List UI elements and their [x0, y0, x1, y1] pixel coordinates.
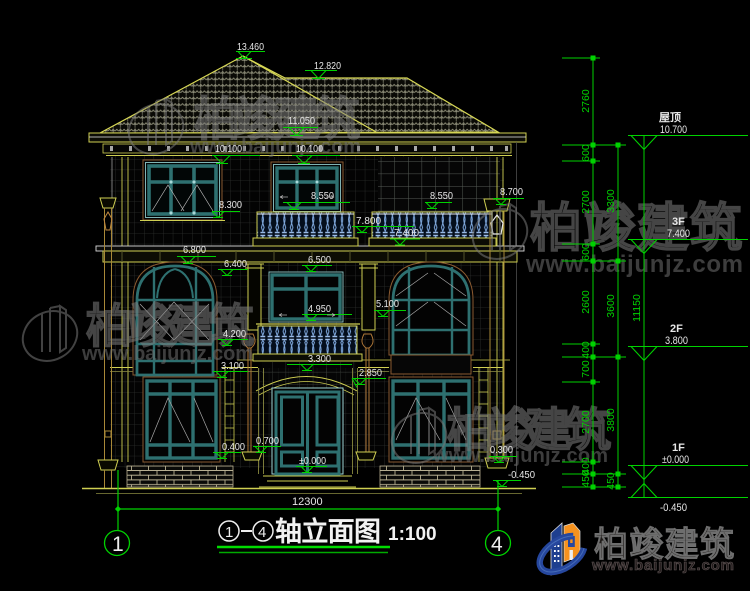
svg-text:2F: 2F: [670, 323, 683, 335]
svg-text:8.300: 8.300: [219, 200, 242, 211]
svg-text:1: 1: [225, 524, 233, 541]
svg-text:0.700: 0.700: [256, 436, 279, 447]
svg-text:6.800: 6.800: [183, 245, 206, 256]
svg-text:3.800: 3.800: [665, 335, 688, 347]
svg-text:0.400: 0.400: [222, 442, 245, 453]
svg-text:屋顶: 屋顶: [659, 111, 681, 124]
svg-text:700: 700: [580, 360, 592, 378]
svg-text:-0.450: -0.450: [508, 470, 535, 481]
svg-text:11150: 11150: [631, 294, 643, 322]
svg-text:5.100: 5.100: [376, 299, 399, 310]
svg-text:3800: 3800: [605, 408, 617, 432]
svg-text:450: 450: [580, 470, 592, 488]
svg-text:0.300: 0.300: [490, 445, 513, 456]
svg-text:2700: 2700: [580, 190, 592, 214]
svg-text:10.100: 10.100: [215, 144, 242, 155]
svg-text:1: 1: [112, 533, 124, 556]
svg-text:±0.000: ±0.000: [662, 454, 689, 466]
svg-text:4: 4: [491, 533, 503, 556]
svg-text:4.950: 4.950: [308, 304, 331, 315]
svg-text:2700: 2700: [580, 410, 592, 434]
svg-text:2760: 2760: [580, 89, 592, 113]
svg-text:450: 450: [605, 472, 617, 490]
svg-text:3.100: 3.100: [221, 361, 244, 372]
svg-text:±0.000: ±0.000: [299, 456, 326, 467]
svg-text:11.050: 11.050: [288, 116, 315, 127]
svg-text:1F: 1F: [672, 442, 685, 454]
svg-text:www.baijunjz.com: www.baijunjz.com: [591, 557, 734, 574]
svg-text:柏竣建筑: 柏竣建筑: [530, 200, 742, 258]
svg-text:4.200: 4.200: [223, 329, 246, 340]
svg-text:6.500: 6.500: [308, 255, 331, 266]
svg-text:7.400: 7.400: [394, 228, 419, 239]
svg-text:轴立面图: 轴立面图: [275, 516, 381, 547]
svg-text:8.550: 8.550: [430, 191, 453, 202]
svg-text:7.400: 7.400: [667, 228, 690, 240]
svg-text:3F: 3F: [672, 216, 685, 228]
svg-text:400: 400: [580, 341, 592, 359]
svg-text:3.300: 3.300: [308, 354, 331, 365]
svg-text:3600: 3600: [605, 294, 617, 318]
svg-text:12300: 12300: [292, 496, 323, 508]
svg-text:4: 4: [258, 524, 266, 541]
svg-text:10.700: 10.700: [660, 124, 687, 136]
svg-text:2600: 2600: [580, 290, 592, 314]
svg-text:-0.450: -0.450: [660, 502, 687, 514]
svg-text:2.850: 2.850: [359, 368, 382, 379]
svg-text:600: 600: [580, 144, 592, 162]
svg-text:12.820: 12.820: [314, 61, 341, 72]
svg-text:10.100: 10.100: [296, 144, 323, 155]
svg-text:3300: 3300: [605, 189, 617, 213]
svg-text:www.baijunjz.com: www.baijunjz.com: [525, 251, 744, 278]
svg-text:8.700: 8.700: [500, 187, 523, 198]
svg-text:7.800: 7.800: [356, 216, 381, 227]
svg-text:8.550: 8.550: [311, 191, 334, 202]
svg-text:6.400: 6.400: [224, 259, 247, 270]
svg-text:13.460: 13.460: [237, 42, 264, 53]
svg-text:1:100: 1:100: [388, 524, 437, 545]
svg-text:600: 600: [580, 243, 592, 261]
